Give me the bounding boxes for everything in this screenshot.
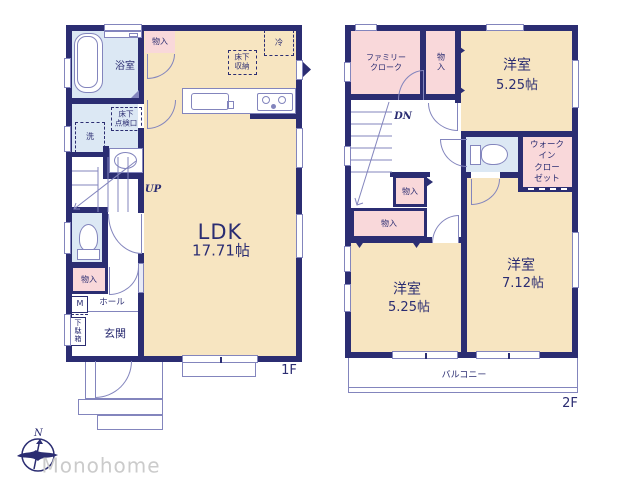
floor2-plan: ファミリー クローク 物 入 洋室 5.25帖 DN ウォーク イン クロー ゼ… <box>0 0 640 480</box>
f1-window-bath-top <box>104 24 142 31</box>
stairs-up-label: UP <box>145 184 161 197</box>
fridge-label: 冷 <box>275 38 283 48</box>
balcony-label: バルコニー <box>442 370 487 381</box>
f2-bedroomb-door-arc <box>432 215 459 243</box>
bedroom-b-label: 洋室 <box>393 281 421 299</box>
f2-window-bedroomc-bottom <box>476 351 540 359</box>
bedroom-a-label: 洋室 <box>503 57 531 75</box>
bedroom-c-label: 洋室 <box>507 257 535 275</box>
f2-stairs-drawing <box>351 100 392 210</box>
f2-window-fc-left <box>344 62 351 82</box>
ldk-size-label: 17.71帖 <box>192 242 250 261</box>
bedroom-a-size-label: 5.25帖 <box>496 78 538 94</box>
closet2f-wide-label: 物入 <box>381 219 397 229</box>
floor1-label: 1F <box>281 363 297 379</box>
f2-toilet-door-arc <box>440 139 467 167</box>
closet1f-hall-label: 物入 <box>81 275 97 285</box>
laundry-label: 洗 <box>86 132 94 142</box>
entrance-label: 玄関 <box>104 327 126 341</box>
bathroom-label: 浴室 <box>115 61 135 74</box>
floor2-label: 2F <box>562 396 578 412</box>
f2-wall-top <box>345 25 578 31</box>
toilet2f-tank <box>470 145 481 165</box>
f1-window-ldk-bottom <box>182 355 258 363</box>
closet2f-small-label: 物入 <box>402 187 418 197</box>
hall-label: ホール <box>99 298 125 309</box>
underfloor-hatch-label: 床下 点検口 <box>115 110 138 129</box>
meter-label: M <box>77 299 84 309</box>
stairs-dn-label: DN <box>394 111 412 124</box>
walk-in-closet-label: ウォーク イン クロー ゼット <box>530 140 564 186</box>
f2-stairs <box>351 100 392 210</box>
f1-window-ldk-right-b <box>296 214 303 258</box>
closet2f-top-label: 物 入 <box>437 53 445 74</box>
family-cloak-label: ファミリー クローク <box>366 53 406 73</box>
compass-north-label: N <box>33 428 44 439</box>
balcony-inner-line <box>348 387 578 388</box>
f2-bedrooma-door-arc <box>428 103 458 131</box>
f2-window-bedroomb-bottom <box>392 351 458 359</box>
f2-slider-tick-b <box>508 353 510 359</box>
closet1f-top-label: 物入 <box>152 37 168 47</box>
toilet2f-bowl <box>481 144 508 165</box>
f1-window-bath-left <box>64 58 71 88</box>
f2-window-bedroomc-right <box>572 232 579 288</box>
f1-window-slider-tick <box>220 357 222 363</box>
f2-window-fc-top <box>355 24 377 31</box>
bedroom-b-size-label: 5.25帖 <box>388 300 430 316</box>
f2-wall-toilet-wic <box>518 137 523 192</box>
f2-window-stairs-left <box>344 146 351 166</box>
bedroom-c-size-label: 7.12帖 <box>502 276 544 292</box>
f1-backdoor-right <box>296 60 303 80</box>
f2-window-bedrooma-right <box>572 60 579 108</box>
f1-window-ldk-right-a <box>296 128 303 168</box>
brand-logo-text: Monohome <box>41 454 160 479</box>
f2-closet-small-door-mark <box>426 177 433 187</box>
f2-wall-bedrooma-bottom <box>461 131 572 137</box>
f1-window-toilet-left <box>64 222 71 254</box>
f2-window-bedroomb-left-b <box>344 284 351 312</box>
f2-window-bedrooma-top <box>486 24 524 31</box>
f2-wall-bedrooms-divider <box>461 178 467 352</box>
f2-slider-tick-a <box>425 353 427 359</box>
underfloor-storage-label: 床下 収納 <box>235 53 250 72</box>
f2-window-bedroomb-left-a <box>344 246 351 272</box>
floor-plan-page: { "colors":{"wall":"#2b2d72","room":"#f7… <box>0 0 640 480</box>
wic-accordion-door <box>528 188 567 190</box>
shoe-cabinet-label: 下 駄 箱 <box>75 319 82 343</box>
f2-wall-closet-small-top <box>390 172 430 177</box>
f1-window-entrance-left <box>64 314 71 346</box>
f1-window-wash-left <box>64 126 71 152</box>
